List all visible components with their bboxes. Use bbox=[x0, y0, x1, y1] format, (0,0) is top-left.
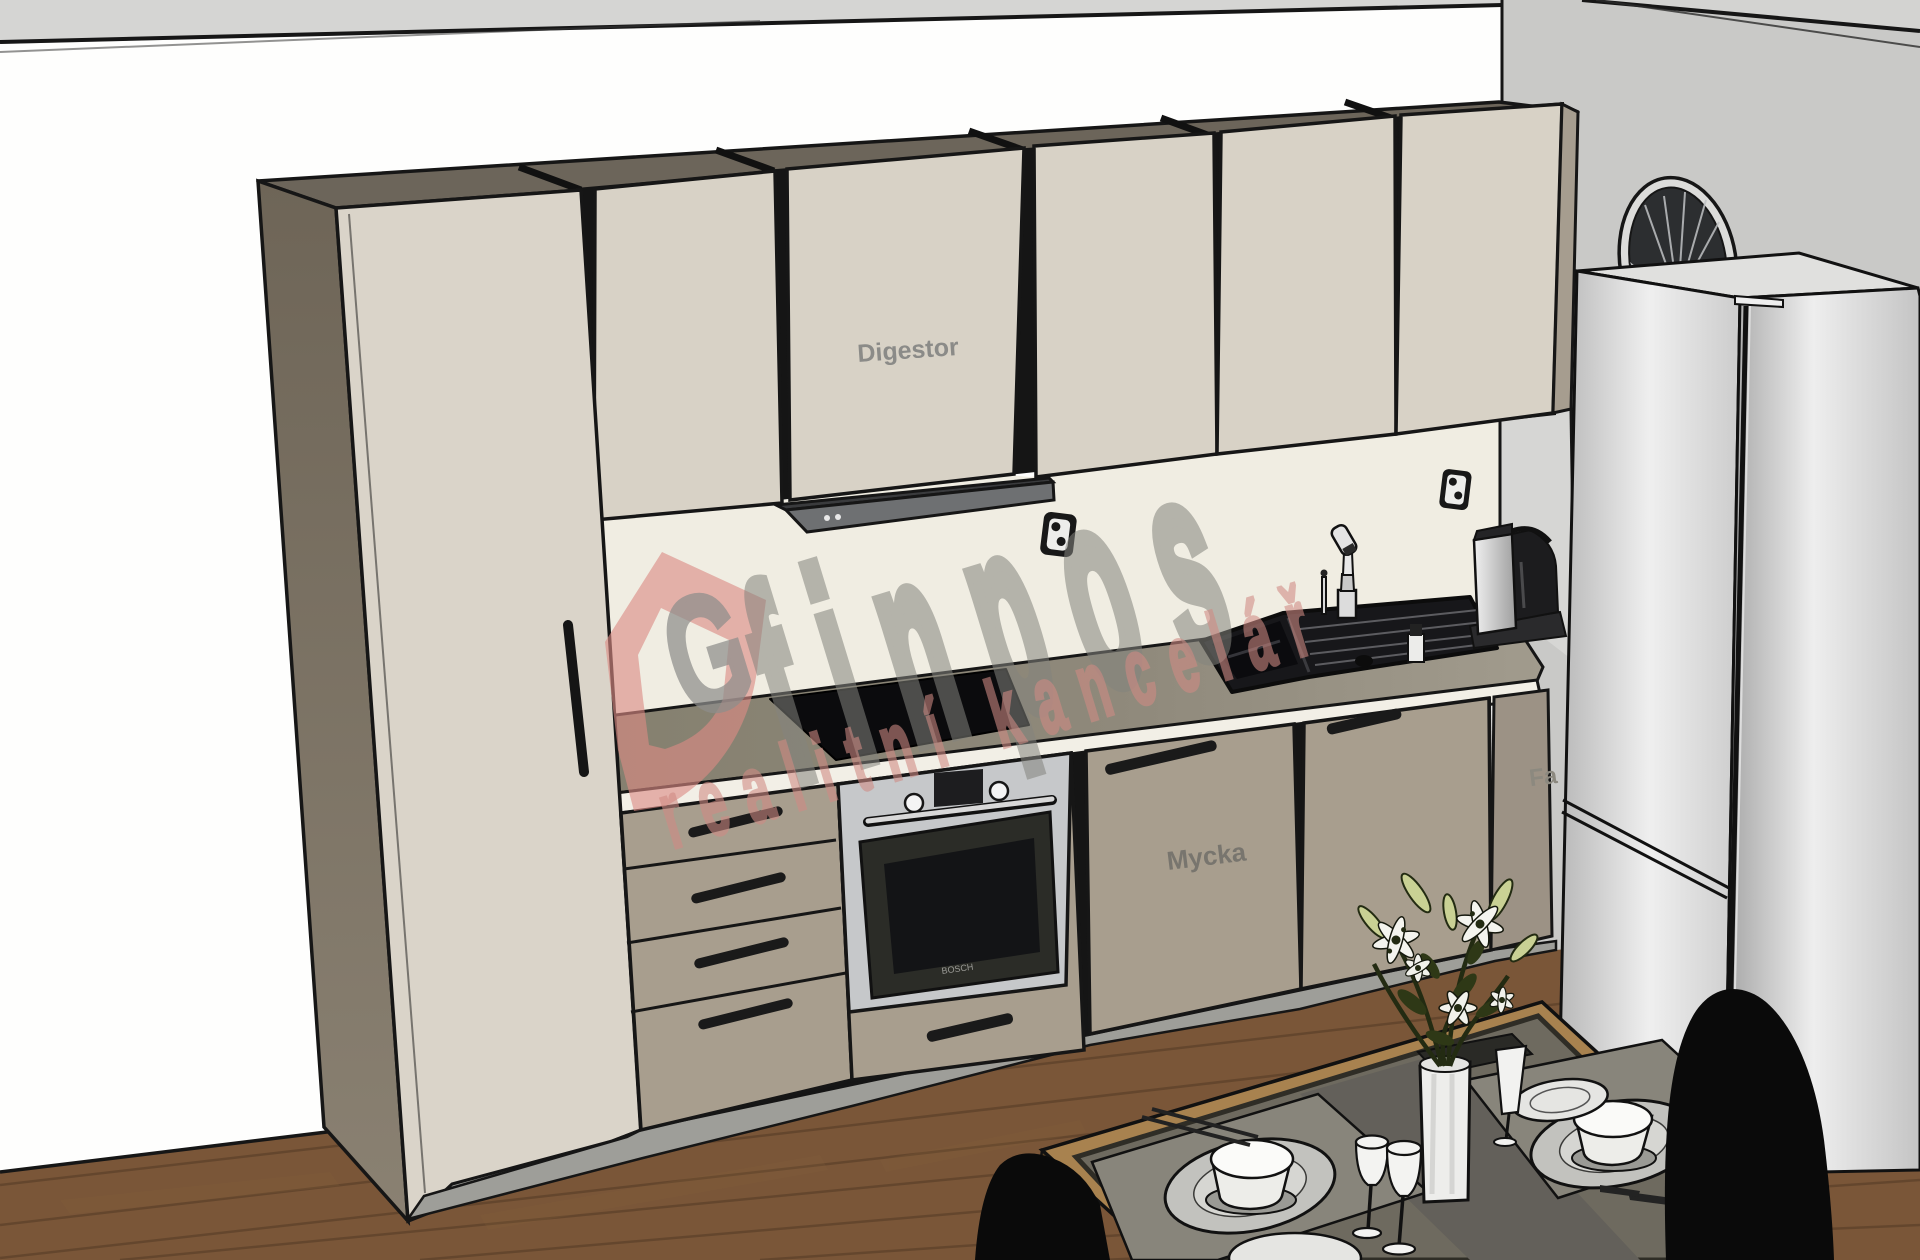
svg-text:Fa: Fa bbox=[1528, 762, 1560, 792]
